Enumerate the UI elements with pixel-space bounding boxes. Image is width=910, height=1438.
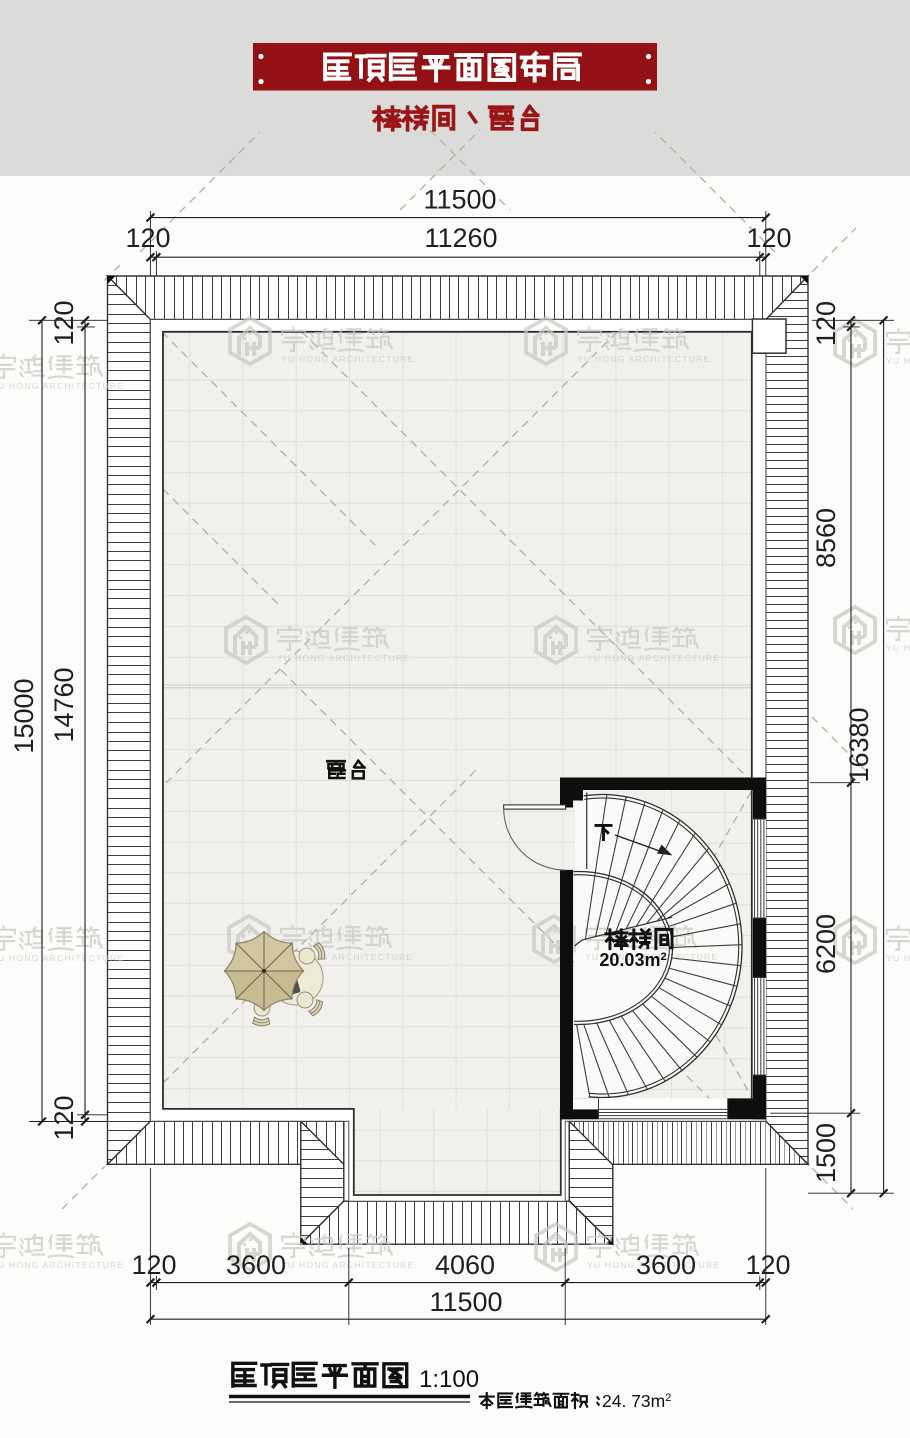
svg-text:14760: 14760 [49,667,79,742]
svg-text:120: 120 [125,223,170,253]
svg-text:120: 120 [49,1095,79,1140]
svg-text:4060: 4060 [435,1250,495,1280]
svg-text:120: 120 [49,300,79,345]
svg-text:120: 120 [811,301,841,346]
svg-text:24. 73m2: 24. 73m2 [602,1391,671,1411]
svg-text:3600: 3600 [636,1250,696,1280]
svg-text:1500: 1500 [811,1123,841,1183]
svg-text:16380: 16380 [844,707,874,782]
svg-text:11500: 11500 [429,1287,502,1317]
svg-text:11500: 11500 [423,185,496,215]
svg-text:20.03m2: 20.03m2 [599,950,666,970]
svg-text:120: 120 [746,223,791,253]
svg-text:3600: 3600 [226,1250,286,1280]
svg-text:120: 120 [745,1250,790,1280]
svg-text:15000: 15000 [9,678,39,753]
svg-text:6200: 6200 [811,914,841,974]
svg-text:120: 120 [131,1250,176,1280]
svg-text:1:100: 1:100 [419,1366,479,1393]
svg-text:11260: 11260 [424,223,497,253]
svg-text:8560: 8560 [811,508,841,568]
